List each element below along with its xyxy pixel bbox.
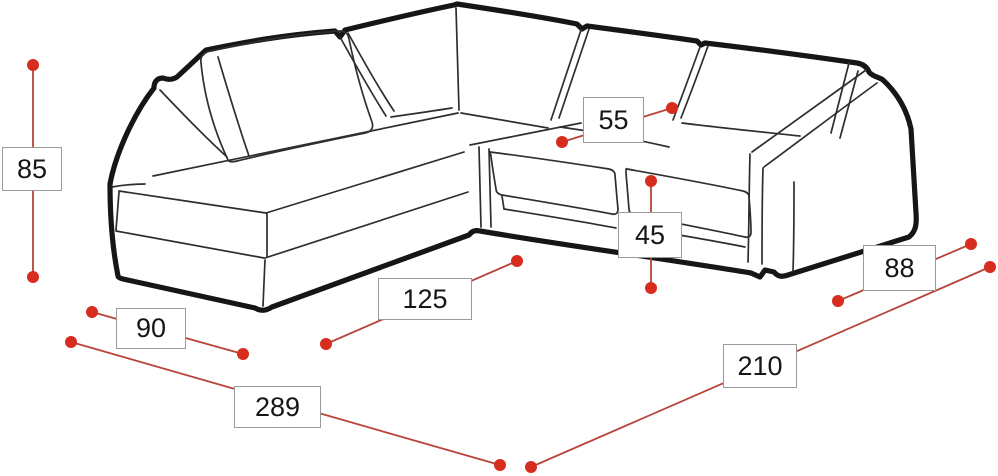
dimension-endpoint-dot — [86, 306, 98, 318]
dimension-label-85: 85 — [2, 147, 62, 191]
dimension-label-90: 90 — [116, 308, 186, 349]
dimension-endpoint-dot — [965, 238, 977, 250]
dimension-endpoint-dot — [666, 102, 678, 114]
dimension-label-289: 289 — [234, 386, 321, 428]
dimension-endpoint-dot — [645, 282, 657, 294]
dimension-endpoint-dot — [984, 261, 996, 273]
sofa-dimension-diagram: 85 55 45 125 90 289 210 88 — [0, 0, 998, 476]
dimension-endpoint-dot — [320, 338, 332, 350]
dimension-label-55: 55 — [583, 97, 644, 143]
sofa-diagram-canvas — [0, 0, 998, 476]
dimension-endpoint-dot — [525, 461, 537, 473]
dimension-label-210: 210 — [723, 344, 797, 388]
dimension-endpoint-dot — [832, 295, 844, 307]
dimension-label-88: 88 — [863, 245, 936, 291]
dimension-label-125: 125 — [378, 278, 472, 320]
dimension-endpoint-dot — [27, 59, 39, 71]
dimension-endpoint-dot — [27, 271, 39, 283]
dimension-endpoint-dot — [494, 459, 506, 471]
dimension-label-45: 45 — [618, 212, 682, 258]
dimension-endpoint-dot — [511, 255, 523, 267]
dimension-endpoint-dot — [645, 175, 657, 187]
dimension-endpoint-dot — [65, 336, 77, 348]
dimension-endpoint-dot — [556, 136, 568, 148]
dimension-endpoint-dot — [237, 348, 249, 360]
